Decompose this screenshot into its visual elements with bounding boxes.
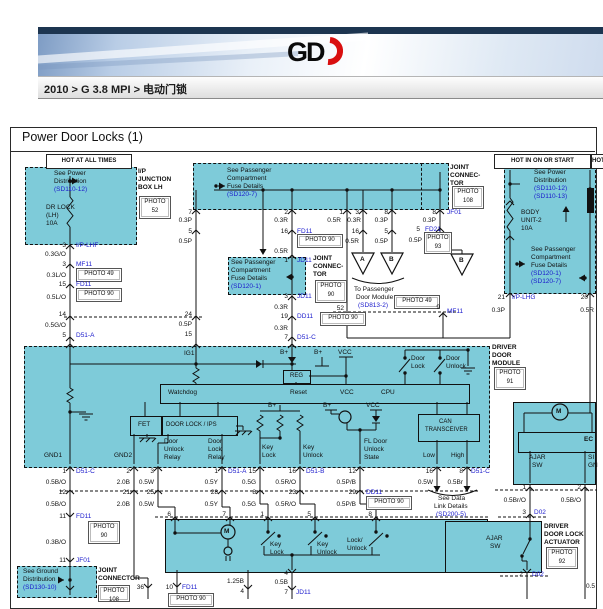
diagram-label: Distribution	[534, 177, 567, 185]
resistor-fuse-symbol	[193, 368, 199, 383]
diagram-label: 0.5G	[242, 501, 256, 509]
diagram-label: 0.5R/O	[275, 479, 296, 487]
diagram-label: To Passenger	[354, 286, 394, 294]
diagram-label: M	[556, 408, 561, 416]
diagram-label: Door Module	[356, 294, 393, 302]
diagram-label: Watchdog	[168, 389, 197, 397]
diagram-label: 0.5	[586, 583, 595, 591]
junction-dot	[266, 530, 269, 533]
diagram-label: Fuse Details	[531, 262, 567, 270]
diagram-label: 0.5R	[345, 238, 359, 246]
flow-arrow-icon	[563, 206, 570, 212]
link-label[interactable]: (SD200-5)	[436, 511, 466, 519]
ground-icon	[79, 414, 93, 420]
diagram-label: 0.5P	[179, 321, 192, 329]
diagram-label: 25	[147, 489, 154, 497]
diagram-label: IG1	[184, 350, 194, 358]
diagram-label: B+	[280, 349, 288, 357]
diagram-label: 1	[214, 468, 218, 476]
diagram-label: 0.5G/O	[45, 322, 66, 330]
diagram-label: CAN	[439, 418, 452, 426]
wire	[523, 540, 530, 554]
diagram-label: 10A	[46, 220, 58, 228]
diagram-label: 2.0B	[117, 501, 130, 509]
diagram-label: REG	[290, 372, 303, 380]
link-label[interactable]: JF01	[76, 557, 90, 565]
diagram-label: B+	[314, 349, 322, 357]
photo-ref-box[interactable]: PHOTO90	[315, 280, 347, 303]
link-label[interactable]: JF01	[447, 209, 461, 217]
diagram-label: Reset	[290, 389, 307, 397]
diagram-label: 52	[337, 305, 344, 313]
diagram-label: VCC	[366, 402, 380, 410]
diagram-label: Door	[411, 355, 425, 363]
diagram-label: 0.3P	[423, 217, 436, 225]
diagram-label: JOINT	[313, 255, 332, 263]
diagram-label: DRIVER	[544, 523, 569, 531]
junction-dot	[194, 362, 197, 365]
diagram-label: 0.5L/O	[46, 294, 66, 302]
junction-dot	[214, 184, 217, 187]
diagram-label: 0.5G	[242, 479, 256, 487]
diagram-label: 0.5P	[179, 238, 192, 246]
diagram-label: 3	[522, 509, 526, 517]
diagram-label: A	[360, 256, 365, 264]
diagram-label: See Ground	[23, 568, 58, 576]
diagram-label: 5	[384, 228, 388, 236]
diagram-label: B	[389, 256, 394, 264]
junction-dot	[508, 182, 511, 185]
diagram-label: FL Door	[364, 438, 387, 446]
diagram-label: See Passenger	[231, 259, 275, 267]
diagram-label: 1	[62, 468, 66, 476]
diagram-label: 7	[188, 209, 192, 217]
diagram-label: MODULE	[492, 360, 520, 368]
diagram-label: 3	[355, 209, 359, 217]
junction-dot	[390, 188, 393, 191]
diagram-label: 16	[289, 468, 296, 476]
diagram-label: Door	[208, 438, 222, 446]
diagram-label: UNIT-2	[521, 217, 542, 225]
diagram-label: See Passenger	[531, 246, 575, 254]
link-label[interactable]: JD11	[296, 589, 311, 597]
link-label[interactable]: JD11	[297, 257, 312, 265]
diagram-label: GND2	[114, 452, 132, 460]
diagram-label: Lock	[411, 363, 425, 371]
diagram-label: 2	[126, 468, 130, 476]
diagram-label: VCC	[340, 389, 354, 397]
junction-dot	[278, 436, 281, 439]
diagram-label: DR LOCK	[46, 204, 75, 212]
junction-dot	[324, 534, 327, 537]
diagram-label: Compartment	[227, 175, 266, 183]
diagram-label: 7	[284, 334, 288, 342]
diagram-label: 0.5Y	[205, 479, 218, 487]
diagram-label: 2	[284, 209, 288, 217]
diagram-label: 2	[519, 571, 523, 579]
flow-arrow-icon	[286, 274, 292, 281]
diagram-label: SI	[588, 454, 594, 462]
diagram-label: 10	[166, 584, 173, 592]
diagram-label: DOOR LOCK / IPS	[166, 421, 217, 429]
diagram-label: JOINT	[450, 164, 469, 172]
photo-ref-box[interactable]: PHOTO 90	[76, 288, 122, 302]
diagram-label: 36	[137, 584, 144, 592]
link-label[interactable]: (SD110-12)	[534, 185, 567, 193]
diagram-label: CONNEC-	[450, 172, 480, 180]
diagram-label: Unlock	[164, 446, 184, 454]
hot-condition-box: HOT A	[591, 154, 603, 169]
diagram-label: Distribution	[23, 576, 56, 584]
photo-ref-box[interactable]: PHOTO108	[98, 585, 130, 602]
diagram-label: 0.5W	[139, 479, 154, 487]
diagram-label: 15	[249, 468, 256, 476]
diagram-label: Key	[270, 541, 281, 549]
diagram-label: Lock	[262, 452, 276, 460]
diagram-label: TOR	[450, 180, 464, 188]
link-label[interactable]: FD11	[182, 584, 197, 592]
wire	[369, 533, 383, 546]
photo-ref-box[interactable]: PHOTO 90	[320, 312, 366, 326]
diagram-label: AJAR	[486, 535, 503, 543]
diagram-label: DOOR	[492, 352, 512, 360]
diagram-label: Compartment	[531, 254, 570, 262]
diagram-label: 12	[349, 468, 356, 476]
diagram-label: Low	[423, 452, 435, 460]
diagram-label: 0.5R/O	[275, 501, 296, 509]
junction-dot	[466, 348, 469, 351]
diagram-label: Key	[317, 541, 328, 549]
diagram-label: 0.3P	[492, 307, 505, 315]
diagram-label: 0.5P/B	[336, 501, 356, 509]
link-label[interactable]: I/P-LHG	[512, 294, 535, 302]
diagram-label: Unlock	[303, 452, 323, 460]
diagram-label: BODY	[521, 209, 539, 217]
link-label[interactable]: (SD120-7)	[227, 191, 257, 199]
diagram-label: DRIVER	[492, 344, 517, 352]
junction-dot	[344, 374, 347, 377]
link-label[interactable]: D51-C	[76, 468, 95, 476]
diagram-label: 5	[307, 511, 311, 519]
diagram-label: 7	[284, 589, 288, 597]
diagram-label: 2	[577, 484, 581, 492]
diagram-label: CONNECTOR	[98, 575, 140, 583]
link-label[interactable]: FD21	[425, 226, 441, 234]
diagram-label: Lock/	[347, 537, 363, 545]
diagram-label: 0.3P	[375, 217, 388, 225]
diagram-label: 14	[59, 311, 66, 319]
component-box	[160, 384, 470, 404]
diagram-label: Relay	[164, 454, 181, 462]
photo-ref-box[interactable]: PHOTO93	[424, 232, 452, 254]
diagram-label: TOR	[313, 271, 327, 279]
diagram-label: 0.5Br	[447, 479, 463, 487]
diagram-label: 1	[522, 484, 526, 492]
link-label[interactable]: D51-C	[471, 468, 490, 476]
resistor-fuse-symbol	[277, 415, 283, 431]
link-label[interactable]: D02	[532, 571, 544, 579]
diagram-label: 0.5R	[327, 217, 341, 225]
resistor-fuse-symbol	[297, 415, 303, 431]
diagram-label: 28	[211, 489, 218, 497]
diagram-label: B+	[268, 402, 276, 410]
diagram-title: Power Door Locks (1)	[22, 133, 143, 141]
diagram-label: 8	[384, 209, 388, 217]
diagram-label: Unlock	[317, 549, 337, 557]
diagram-label: Fuse Details	[231, 275, 267, 283]
diagram-label: State	[364, 454, 379, 462]
diagram-label: 0.3G/O	[45, 251, 66, 259]
link-label[interactable]: (SD120-1)	[231, 283, 261, 291]
link-label[interactable]: D51-B	[306, 468, 324, 476]
diagram-label: 1	[260, 511, 264, 519]
diagram-label: CPU	[381, 389, 395, 397]
diagram-label: GN	[588, 462, 598, 470]
photo-ref-box[interactable]: PHOTO 90	[297, 234, 343, 248]
diagram-label: 4	[284, 570, 288, 578]
diagram-label: Link Details	[434, 503, 468, 511]
link-label[interactable]: (SD110-12)	[54, 186, 87, 194]
diagram-label: 10A	[521, 225, 533, 233]
diagram-label: 21	[498, 294, 505, 302]
junction-dot	[374, 530, 377, 533]
diagram-label: 11	[59, 557, 66, 565]
diagram-label: 0.5W	[418, 479, 433, 487]
diagram-label: 7	[222, 511, 226, 519]
resistor-fuse-symbol	[257, 415, 263, 431]
junction-dot	[68, 410, 71, 413]
diagram-label: 0.5Br/O	[504, 497, 526, 505]
flow-arrow-icon	[219, 183, 225, 190]
junction-dot	[385, 534, 388, 537]
junction-dot	[290, 553, 293, 556]
component-circle	[339, 411, 351, 423]
diagram-label: 3	[62, 261, 66, 269]
diagram-label: 1.25B	[227, 578, 244, 586]
junction-dot	[68, 578, 71, 581]
diagram-label: 6	[167, 511, 171, 519]
hot-condition-box: HOT IN ON OR START	[494, 154, 591, 169]
diagram-label: 0.3R	[274, 304, 288, 312]
junction-dot	[358, 428, 361, 431]
diagram-label: 8	[368, 511, 372, 519]
junction-dot	[277, 534, 280, 537]
diagram-label: DOOR LOCK	[544, 531, 584, 539]
photo-ref-box[interactable]: PHOTO 90	[168, 593, 214, 607]
diagram-label: 5	[188, 228, 192, 236]
diagram-label: Compartment	[231, 267, 270, 275]
link-label[interactable]: MF11	[76, 261, 92, 269]
diagram-label: EC	[584, 436, 593, 444]
diagram-label: See Power	[54, 170, 86, 178]
diagram-label: 5	[62, 332, 66, 340]
diagram-label: 5	[416, 226, 420, 234]
diagram-label: B+	[323, 402, 331, 410]
junction-dot	[403, 356, 406, 359]
gds-application-window: GD 2010 > G 3.8 MPI > 电动门锁 Power Door Lo…	[0, 0, 603, 599]
junction-dot	[403, 371, 406, 374]
diagram-label: M	[224, 528, 229, 536]
link-label[interactable]: (SD120-1)	[531, 270, 561, 278]
link-label[interactable]: D51-A	[228, 468, 246, 476]
link-label[interactable]: (SD130-10)	[23, 584, 57, 592]
diagram-label: (LH)	[46, 212, 59, 220]
diagram-label: 15	[185, 331, 192, 339]
link-label[interactable]: (SD110-13)	[534, 193, 567, 201]
diagram-label: 3	[62, 242, 66, 250]
junction-dot	[515, 262, 518, 265]
diagram-label: 1	[339, 209, 343, 217]
diagram-label: FET	[138, 421, 150, 429]
junction-dot	[345, 188, 348, 191]
diagram-label: 0.5R	[580, 307, 594, 315]
diagram-label: 0.5B	[275, 579, 288, 587]
flow-arrow-icon	[519, 261, 525, 268]
link-label[interactable]: D51-A	[76, 332, 94, 340]
diagram-label: Distribution	[54, 178, 87, 186]
diagram-label: 16	[352, 228, 359, 236]
link-label[interactable]: FD11	[297, 228, 312, 236]
wire	[434, 359, 445, 372]
diagram-label: Fuse Details	[227, 183, 263, 191]
diagram-label: 24	[185, 311, 192, 319]
photo-ref-box[interactable]: PHOTO90	[88, 521, 120, 544]
diode-icon	[256, 360, 262, 368]
resistor-fuse-symbol	[67, 388, 73, 403]
diagram-label: Key	[262, 444, 273, 452]
junction-dot	[438, 188, 441, 191]
diagram-label: JOINT	[98, 567, 117, 575]
flow-arrow-icon	[579, 275, 585, 282]
photo-ref-box[interactable]: PHOTO 49	[76, 268, 122, 282]
link-label[interactable]: (SD813-2)	[358, 302, 388, 310]
junction-dot	[520, 554, 523, 557]
diagram-label: Unlock	[446, 363, 466, 371]
link-label[interactable]: D51-C	[297, 334, 316, 342]
link-label[interactable]: MF11	[447, 308, 463, 316]
hot-condition-box: HOT AT ALL TIMES	[46, 154, 132, 169]
link-label[interactable]: DD11	[366, 489, 382, 497]
diagram-label: 4	[240, 588, 244, 596]
diagram-label: 0.5B/O	[46, 479, 66, 487]
diagram-label: VCC	[338, 349, 352, 357]
diagram-label: JUNCTION	[138, 176, 171, 184]
diagram-label: 0.3R	[347, 217, 361, 225]
diagram-label: 12	[59, 489, 66, 497]
diagram-label: 8	[432, 209, 436, 217]
link-label[interactable]: DD11	[297, 313, 313, 321]
diagram-label: 8	[459, 468, 463, 476]
diagram-label: ACTUATOR	[544, 539, 580, 547]
link-label[interactable]: I/P-LHF	[76, 242, 98, 250]
diagram-label: Door	[446, 355, 460, 363]
diagram-label: High	[451, 452, 464, 460]
diagram-label: See Passenger	[227, 167, 271, 175]
diagram-label: 0.3B/O	[46, 539, 66, 547]
diagram-label: Door	[164, 438, 178, 446]
link-label[interactable]: JD11	[297, 293, 312, 301]
diagram-label: BOX LH	[138, 184, 163, 192]
link-label[interactable]: D02	[534, 509, 546, 517]
diode-icon	[372, 416, 380, 422]
diagram-label: 0.5R	[274, 248, 288, 256]
diagram-label: 0.5P	[375, 238, 388, 246]
link-label[interactable]: (SD120-7)	[531, 278, 561, 286]
photo-ref-box[interactable]: PHOTO 49	[394, 295, 440, 309]
diagram-label: Lock	[270, 549, 284, 557]
diagram-label: TRANSCEIVER	[425, 426, 468, 434]
diagram-label: B	[459, 257, 464, 265]
diagram-label: 0.3R	[274, 217, 288, 225]
diagram-label: 2.0B	[117, 479, 130, 487]
diagram-label: I/P	[138, 168, 146, 176]
diagram-label: 0.3P	[179, 217, 192, 225]
diagram-label: 0.5Y	[205, 501, 218, 509]
junction-dot	[438, 371, 441, 374]
flow-arrow-icon	[434, 486, 441, 492]
diagram-label: 0.5W	[139, 501, 154, 509]
diagram-label: 0.5B/O	[46, 501, 66, 509]
diagram-label: See Power	[534, 169, 566, 177]
diagram-label: GND1	[44, 452, 62, 460]
photo-ref-box[interactable]: PHOTO92	[546, 547, 578, 569]
diagram-label: AJAR	[529, 454, 546, 462]
diagram-label: 16	[426, 468, 433, 476]
diagram-label: Key	[303, 444, 314, 452]
flow-arrow-icon	[464, 486, 471, 492]
diagram-label: See Data	[438, 495, 465, 503]
diagram-label: Unlock	[364, 446, 384, 454]
diagram-label: 3	[150, 468, 154, 476]
diagram-label: SW	[490, 543, 500, 551]
link-label[interactable]: FD11	[76, 281, 91, 289]
flow-arrow-icon	[58, 577, 64, 584]
chassis-ground-icon	[139, 438, 156, 442]
photo-ref-box[interactable]: PHOTO108	[452, 186, 484, 209]
diagram-label: 16	[281, 228, 288, 236]
diagram-label: 21	[123, 489, 130, 497]
diode-icon	[288, 357, 296, 363]
diagram-label: 23	[289, 489, 296, 497]
component-circle	[224, 547, 232, 555]
wire	[399, 359, 410, 372]
photo-ref-box[interactable]: PHOTO52	[139, 196, 171, 219]
fusible-link-bar	[587, 188, 594, 213]
diagram-label: 1	[284, 257, 288, 265]
photo-ref-box[interactable]: PHOTO91	[494, 367, 526, 390]
diagram-label: 3	[284, 293, 288, 301]
diagram-label: CONNEC-	[313, 263, 343, 271]
junction-dot	[438, 356, 441, 359]
diagram-label: 15	[59, 281, 66, 289]
junction-dot	[290, 188, 293, 191]
diagram-label: 0.5P	[409, 237, 422, 245]
diagram-label: 19	[281, 313, 288, 321]
diagram-label: Relay	[208, 454, 225, 462]
resistor-fuse-symbol	[67, 197, 73, 227]
diagram-label: 9	[436, 304, 440, 312]
junction-dot	[173, 531, 176, 534]
diagram-label: 20	[581, 294, 588, 302]
junction-dot	[313, 530, 316, 533]
junction-dot	[528, 537, 531, 540]
link-label[interactable]: FD11	[76, 513, 91, 521]
photo-ref-box[interactable]: PHOTO 90	[366, 496, 412, 510]
diagram-label: Unlock	[347, 545, 367, 553]
diagram-label: 8	[252, 489, 256, 497]
diagram-label: 0.3R	[274, 325, 288, 333]
diagram-label: 29	[349, 489, 356, 497]
